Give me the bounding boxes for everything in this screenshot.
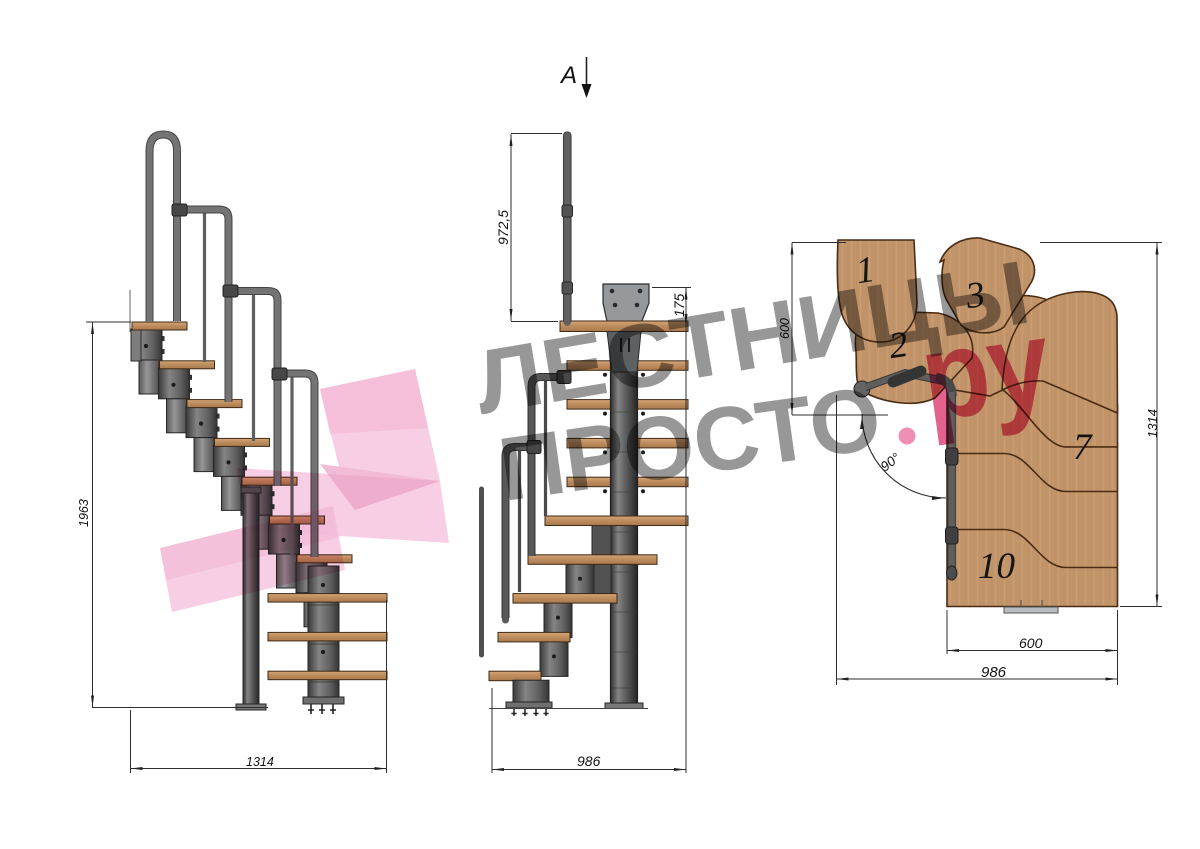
- svg-text:986: 986: [577, 753, 601, 769]
- svg-text:10: 10: [978, 546, 1016, 587]
- svg-text:1314: 1314: [246, 755, 274, 769]
- svg-text:A: A: [559, 62, 577, 89]
- svg-text:972,5: 972,5: [495, 210, 511, 245]
- svg-text:1963: 1963: [77, 499, 91, 527]
- svg-text:ру: ру: [913, 293, 1059, 447]
- svg-text:986: 986: [981, 664, 1007, 681]
- svg-text:7: 7: [1073, 427, 1093, 468]
- svg-text:1314: 1314: [1145, 409, 1160, 438]
- svg-text:600: 600: [1019, 635, 1043, 651]
